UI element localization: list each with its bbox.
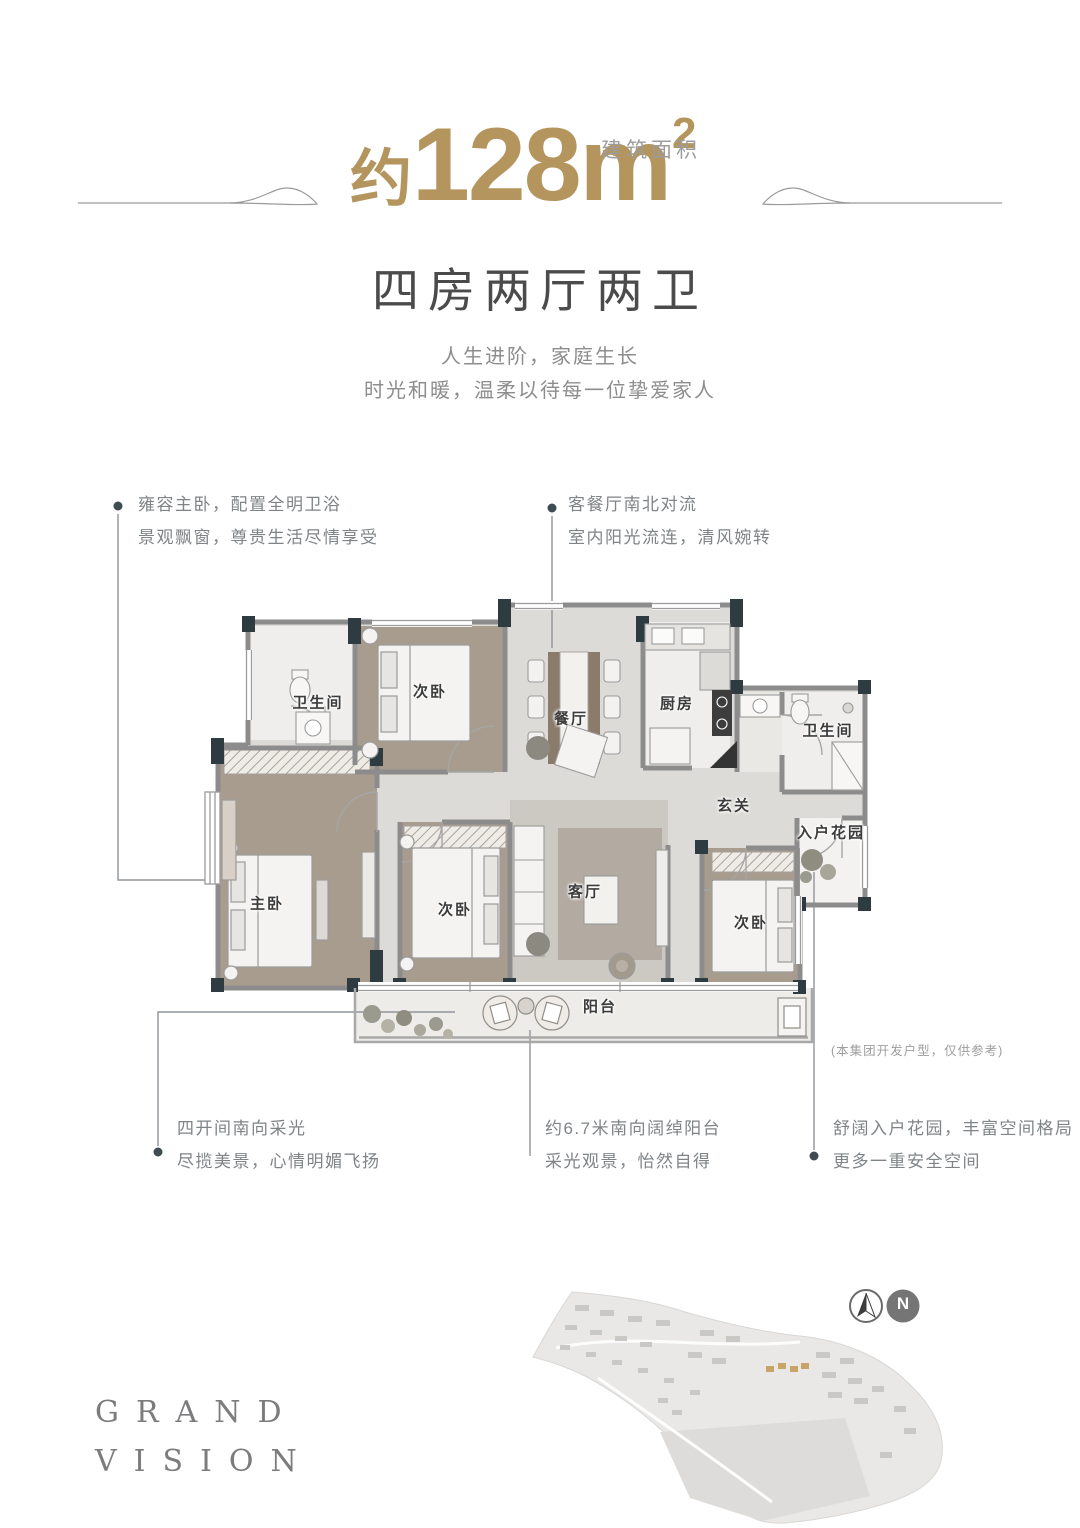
callout-balcony-line2: 采光观景，怡然自得 [545, 1145, 721, 1178]
callout-south-bays: 四开间南向采光 尽揽美景，心情明媚飞扬 [177, 1112, 381, 1178]
area-prefix: 约 [350, 145, 412, 214]
brand-logo: GRAND VISION [95, 1388, 314, 1486]
room-label-bath1: 卫生间 [292, 692, 343, 713]
callout-south-bays-line1: 四开间南向采光 [177, 1112, 381, 1145]
plan-disclaimer: (本集团开发户型，仅供参考) [831, 1040, 1003, 1059]
room-label-bed-mid: 次卧 [438, 899, 472, 920]
brand-line2: VISION [95, 1437, 314, 1486]
site-map [533, 1292, 942, 1523]
poster-page: 约128m2 建筑面积 四房两厅两卫 人生进阶，家庭生长 时光和暖，温柔以待每一… [0, 0, 1080, 1528]
callout-master-line1: 雍容主卧，配置全明卫浴 [138, 488, 379, 521]
callout-garden-line1: 舒阔入户花园，丰富空间格局 [833, 1112, 1074, 1145]
brand-line1: GRAND [95, 1388, 314, 1437]
callout-garden-line2: 更多一重安全空间 [833, 1145, 1074, 1178]
room-label-foyer: 玄关 [717, 795, 751, 816]
room-label-bath2: 卫生间 [802, 720, 853, 741]
room-label-balcony: 阳台 [583, 996, 617, 1017]
area-headline: 约128m2 [350, 106, 697, 225]
callout-living-dining-line2: 室内阳光流连，清风婉转 [568, 521, 772, 554]
decorative-hill-left [78, 188, 317, 205]
compass-north-letter: N [886, 1294, 920, 1314]
room-label-garden: 入户花园 [797, 822, 865, 843]
room-label-living: 客厅 [568, 881, 602, 902]
callout-balcony-line1: 约6.7米南向阔绰阳台 [545, 1112, 721, 1145]
callout-living-dining-line1: 客餐厅南北对流 [568, 488, 772, 521]
callout-balcony: 约6.7米南向阔绰阳台 采光观景，怡然自得 [545, 1112, 721, 1178]
area-label: 建筑面积 [601, 134, 701, 164]
callout-master: 雍容主卧，配置全明卫浴 景观飘窗，尊贵生活尽情享受 [138, 488, 379, 554]
room-label-bed-right: 次卧 [734, 912, 768, 933]
floor-plan [114, 502, 872, 1161]
callout-south-bays-line2: 尽揽美景，心情明媚飞扬 [177, 1145, 381, 1178]
area-unit: m [580, 107, 672, 223]
callout-master-line2: 景观飘窗，尊贵生活尽情享受 [138, 521, 379, 554]
tagline-2: 时光和暖，温柔以待每一位挚爱家人 [0, 374, 1080, 403]
room-label-bed-top: 次卧 [413, 681, 447, 702]
room-label-dining: 餐厅 [554, 708, 588, 729]
callout-garden: 舒阔入户花园，丰富空间格局 更多一重安全空间 [833, 1112, 1074, 1178]
decorative-hill-right [763, 188, 1002, 205]
tagline-1: 人生进阶，家庭生长 [0, 340, 1080, 369]
layout-title: 四房两厅两卫 [0, 252, 1080, 321]
room-label-master: 主卧 [250, 893, 284, 914]
area-value: 128 [412, 107, 580, 223]
callout-living-dining: 客餐厅南北对流 室内阳光流连，清风婉转 [568, 488, 772, 554]
room-label-kitchen: 厨房 [660, 693, 694, 714]
